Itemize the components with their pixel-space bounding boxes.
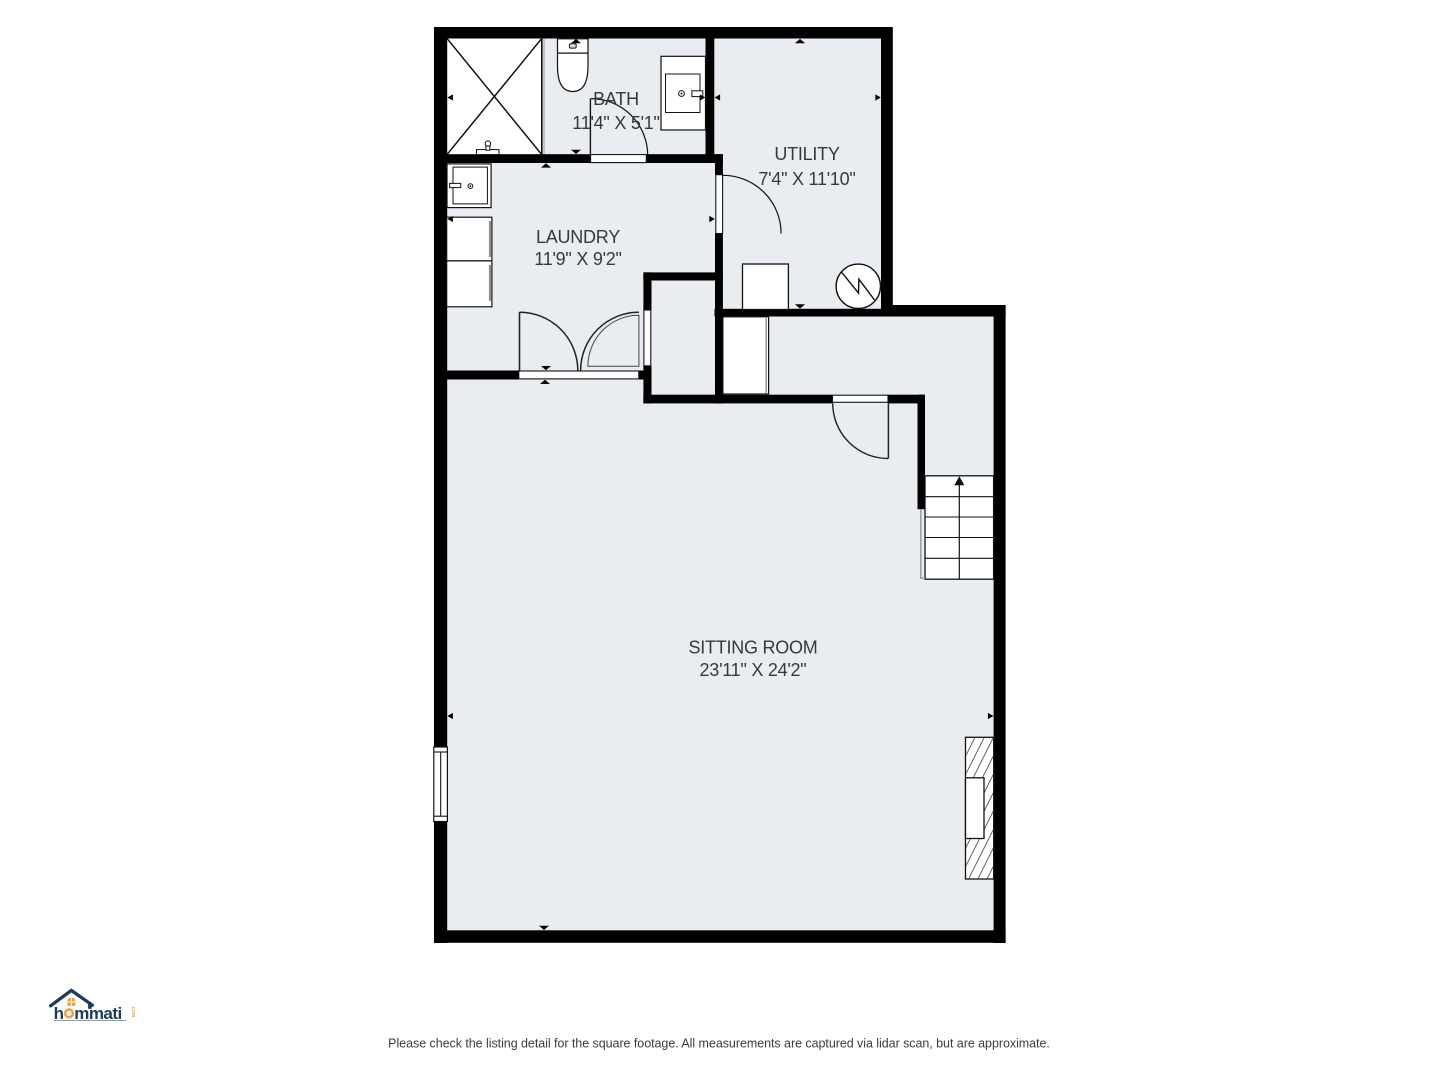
svg-text:23'11" X 24'2": 23'11" X 24'2" (700, 660, 807, 680)
svg-text:.com: .com (130, 1006, 136, 1018)
svg-text:11'9" X 9'2": 11'9" X 9'2" (534, 249, 621, 269)
svg-text:7'4" X 11'10": 7'4" X 11'10" (758, 169, 855, 189)
svg-text:Please check the listing detai: Please check the listing detail for the … (388, 1037, 1050, 1051)
svg-text:11'4" X 5'1": 11'4" X 5'1" (572, 113, 659, 133)
svg-text:LAUNDRY: LAUNDRY (536, 227, 620, 247)
svg-text:BATH: BATH (593, 89, 639, 109)
svg-text:SITTING ROOM: SITTING ROOM (689, 638, 818, 658)
svg-text:UTILITY: UTILITY (774, 144, 840, 164)
